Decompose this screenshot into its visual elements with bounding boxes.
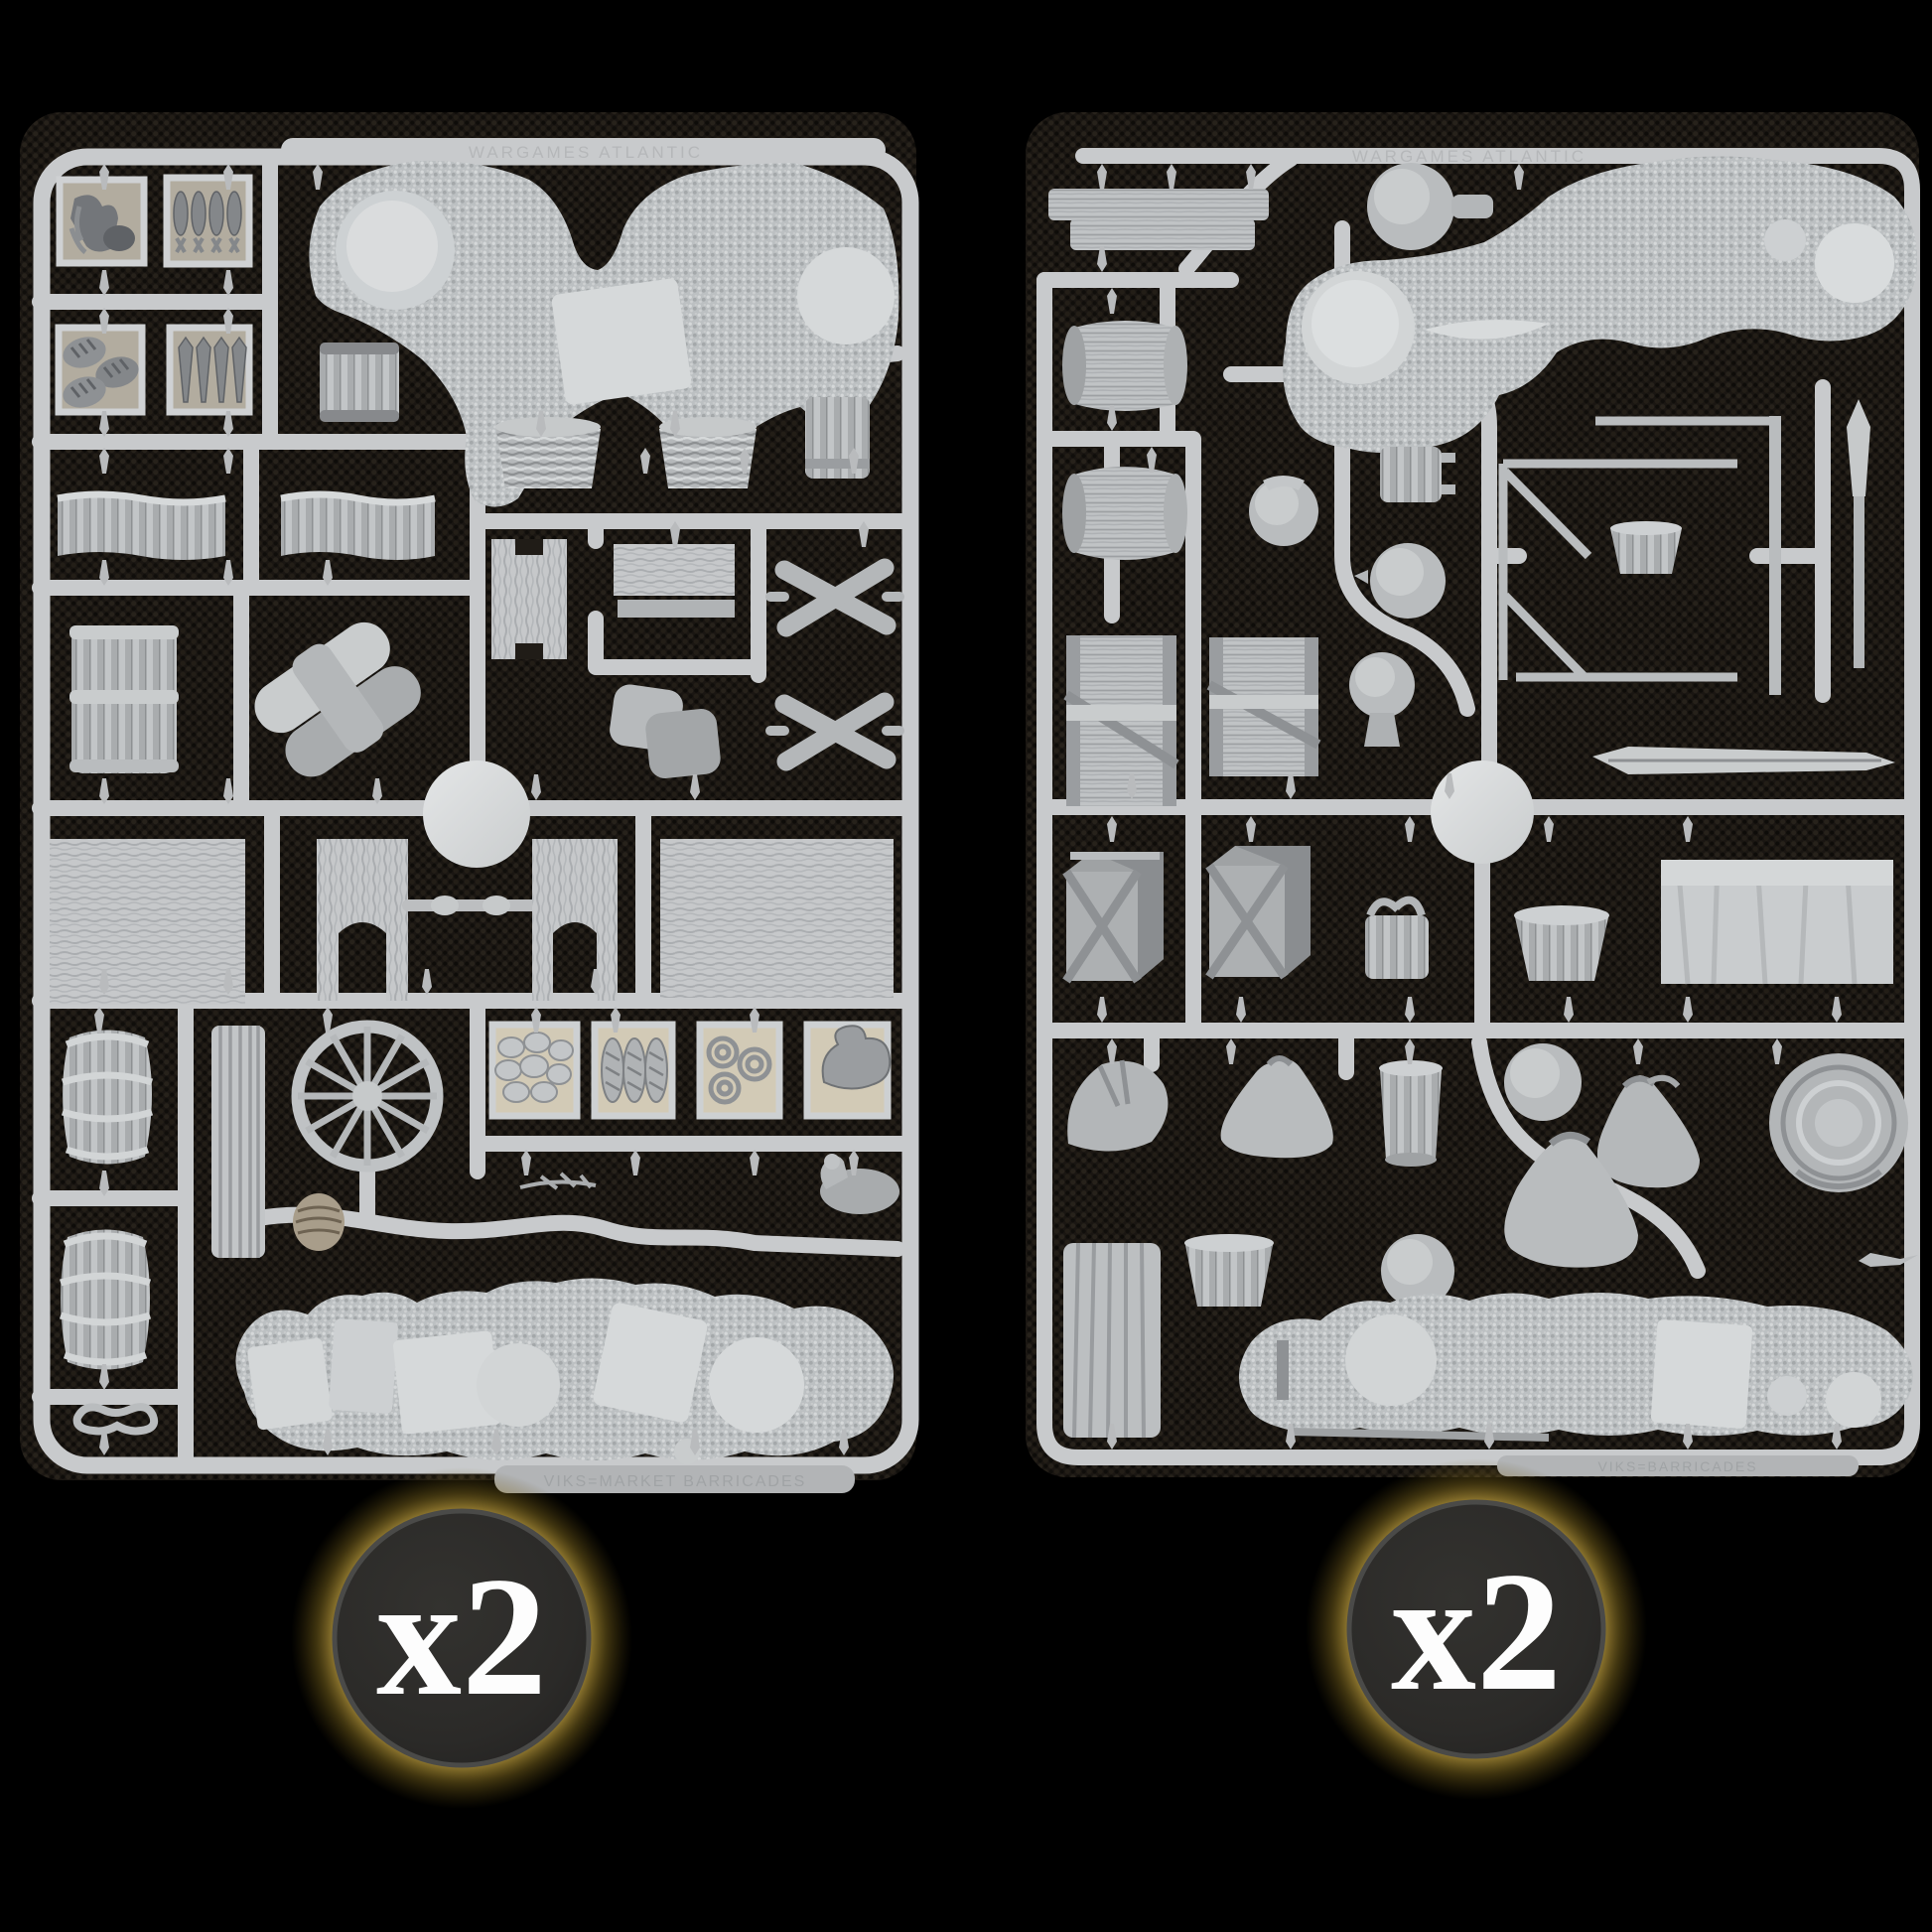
svg-text:VIKS=MARKET BARRICADES: VIKS=MARKET BARRICADES <box>544 1473 807 1490</box>
svg-text:WARGAMES ATLANTIC: WARGAMES ATLANTIC <box>1352 147 1587 166</box>
svg-text:x2: x2 <box>1391 1538 1562 1726</box>
svg-text:x2: x2 <box>376 1543 547 1731</box>
svg-text:WARGAMES ATLANTIC: WARGAMES ATLANTIC <box>469 143 703 162</box>
svg-text:VIKS=BARRICADES: VIKS=BARRICADES <box>1597 1458 1757 1474</box>
